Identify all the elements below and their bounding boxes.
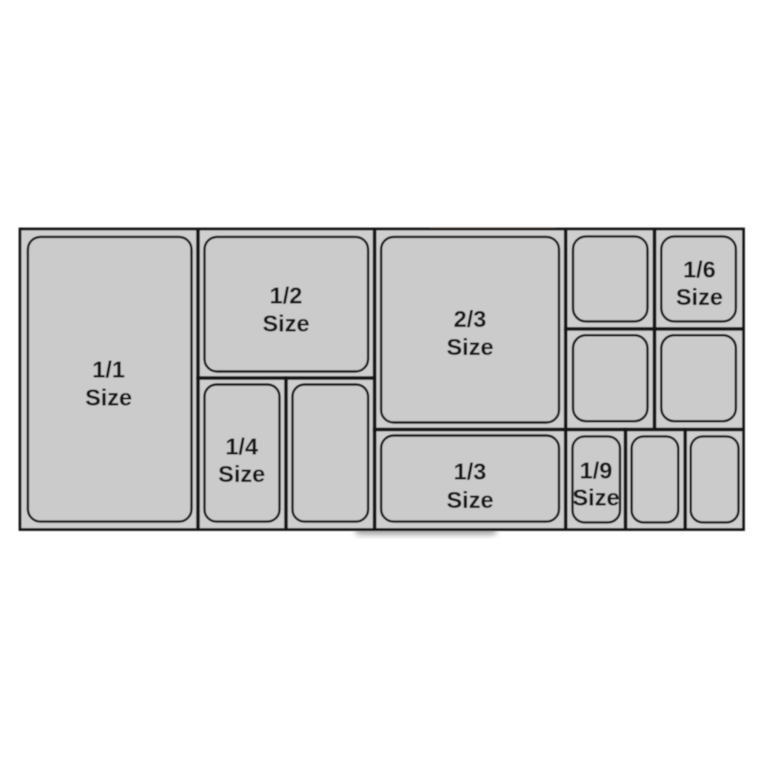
svg-text:1/3: 1/3: [454, 459, 487, 485]
svg-text:Size: Size: [446, 334, 493, 360]
svg-text:1/6: 1/6: [683, 257, 716, 283]
svg-text:1/9: 1/9: [580, 457, 613, 483]
svg-text:2/3: 2/3: [454, 306, 487, 332]
svg-text:Size: Size: [85, 385, 132, 411]
svg-text:1/2: 1/2: [270, 282, 303, 308]
svg-text:Size: Size: [262, 311, 309, 337]
svg-text:Size: Size: [446, 487, 493, 513]
svg-text:Size: Size: [572, 485, 619, 511]
svg-text:Size: Size: [676, 284, 723, 310]
svg-text:Size: Size: [218, 461, 265, 487]
svg-text:1/1: 1/1: [92, 357, 125, 383]
svg-text:1/4: 1/4: [225, 434, 258, 460]
